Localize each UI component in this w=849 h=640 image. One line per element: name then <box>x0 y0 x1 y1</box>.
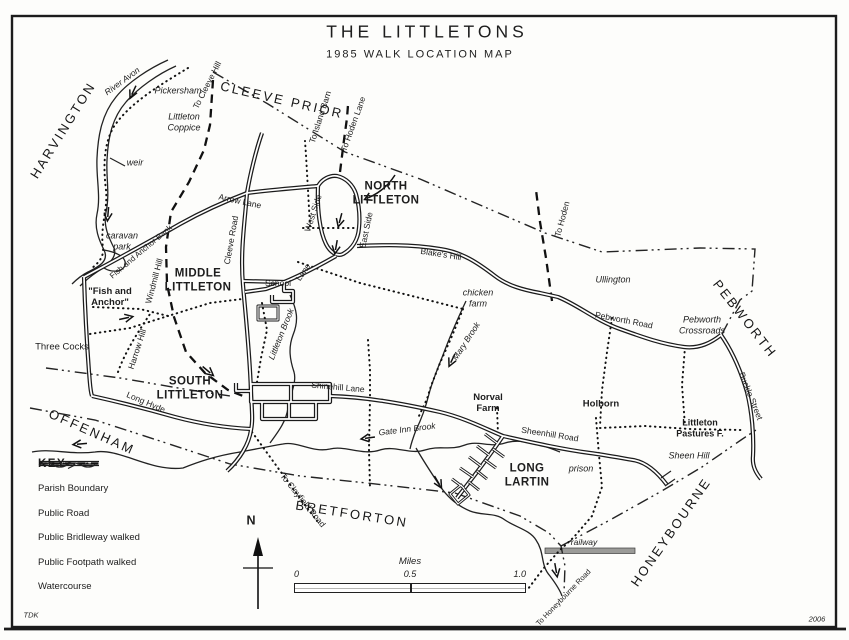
village-label-north-littleton: NORTHLITTLETON <box>353 180 420 207</box>
place-label-ullington: Ullington <box>595 275 630 286</box>
scale-tick-05: 0.5 <box>404 569 417 579</box>
scale-tick-10: 1.0 <box>513 569 526 579</box>
place-label-three-cocks: Three Cocks <box>35 341 89 352</box>
scale-caption: Miles <box>294 556 526 567</box>
cartographer-credit: TDK <box>24 612 39 621</box>
village-label-middle-littleton: MIDDLELITTLETON <box>165 267 232 294</box>
key-legend: KEY Parish Boundary Public Road Public B… <box>38 458 284 606</box>
watercourse-symbol-icon <box>38 458 100 470</box>
place-label-fish-and-anchor: "Fish andAnchor" <box>88 286 132 308</box>
place-label-norval-farm: NorvalFarm <box>473 392 503 414</box>
key-row-watercourse: Watercourse <box>38 581 284 592</box>
page-title: THE LITTLETONS <box>326 22 528 43</box>
place-label-chicken-farm: chickenfarm <box>463 287 494 308</box>
village-label-south-littleton: SOUTHLITTLETON <box>157 375 224 402</box>
place-label-caravan-park: caravanpark <box>106 230 138 251</box>
place-label-holborn: Holborn <box>583 398 619 409</box>
scale-tick-0: 0 <box>294 569 299 579</box>
key-row-parish-boundary: Parish Boundary <box>38 483 284 494</box>
key-row-public-bridleway: Public Bridleway walked <box>38 532 284 543</box>
key-row-public-footpath: Public Footpath walked <box>38 557 284 568</box>
scale-ticks: 0 0.5 1.0 <box>294 569 526 582</box>
weir-mark <box>110 158 125 166</box>
place-label-prison: prison <box>569 464 594 475</box>
place-label-sheen-hill: Sheen Hill <box>668 451 709 462</box>
place-label-pickersham: Pickersham <box>154 86 201 97</box>
page-subtitle: 1985 WALK LOCATION MAP <box>326 49 514 62</box>
roads-layer <box>84 133 761 498</box>
place-label-littleton-pastures: LittletonPastures F. <box>676 417 724 438</box>
place-label-school: School <box>265 278 291 288</box>
scale-bar: Miles 0 0.5 1.0 <box>294 556 526 593</box>
key-row-public-road: Public Road <box>38 508 284 519</box>
map-frame: THE LITTLETONS 1985 WALK LOCATION MAP TD… <box>0 0 849 640</box>
place-label-littleton-coppice: LittletonCoppice <box>167 111 200 132</box>
place-label-pebworth-crossroads: PebworthCrossroads <box>679 314 725 335</box>
place-label-weir: weir <box>127 158 144 169</box>
scale-bar-rule <box>294 583 526 593</box>
village-label-long-lartin: LONGLARTIN <box>505 462 550 489</box>
place-label-railway: railway <box>571 537 597 547</box>
year-credit: 2006 <box>809 616 826 625</box>
